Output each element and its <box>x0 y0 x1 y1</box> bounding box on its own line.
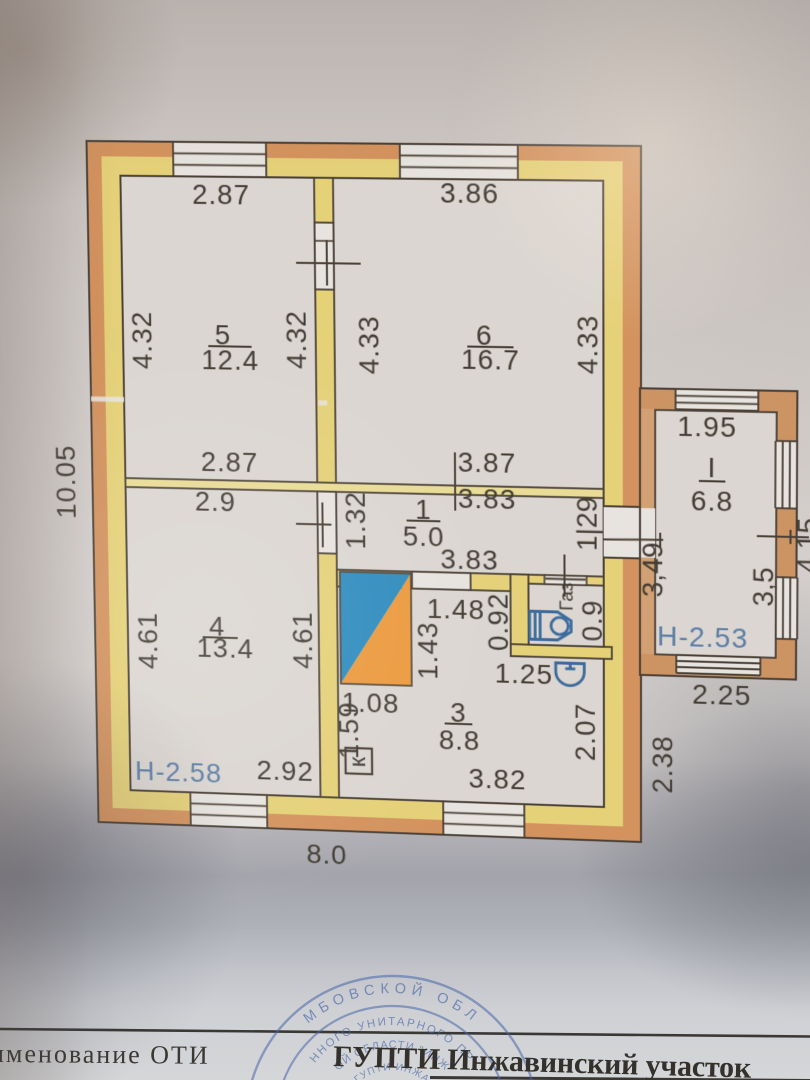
svg-text:именование ОТИ: именование ОТИ <box>0 1039 210 1070</box>
svg-text:ГУПТИ Инжавинский участок: ГУПТИ Инжавинский участок <box>333 1040 753 1080</box>
